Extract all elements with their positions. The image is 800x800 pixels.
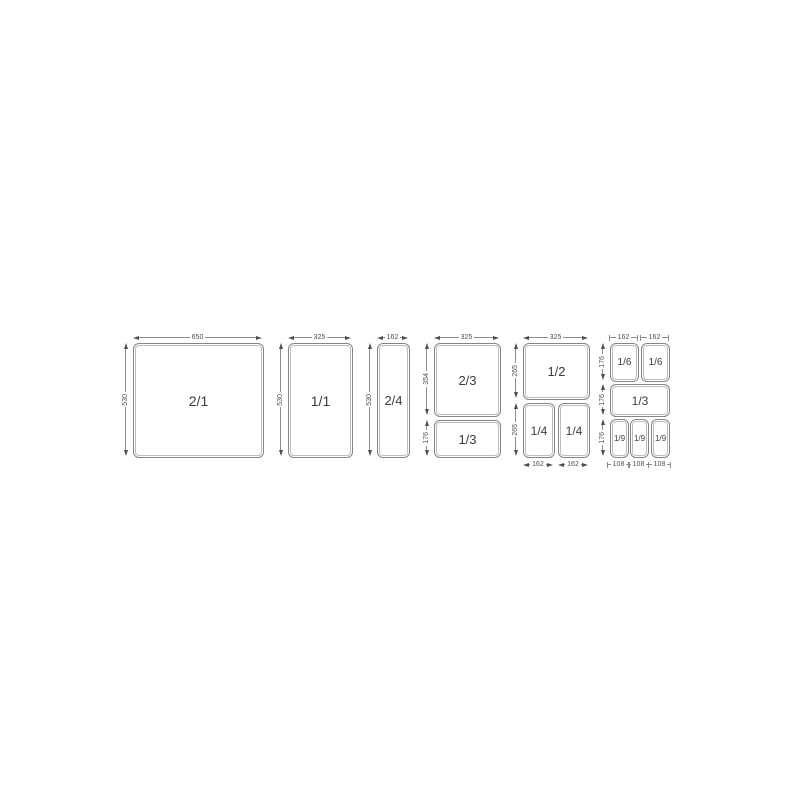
dim-label: 650 [190, 334, 206, 341]
dim-line [280, 349, 281, 392]
arrowhead-down-icon [425, 450, 429, 456]
dim-line [474, 337, 493, 338]
arrowhead-down-icon [601, 450, 605, 456]
dim-label: 108 [611, 461, 627, 468]
dim-arrow-height-1-6: 176 [598, 343, 607, 380]
dim-line [515, 437, 516, 450]
dim-label: 108 [652, 461, 668, 468]
pan-label: 1/9 [614, 435, 625, 443]
dim-arrow-height-1-4: 265 [511, 403, 520, 456]
dim-arrow-width-1-6-left: 162 [609, 333, 638, 342]
pan-1-3-small: 1/3 [610, 384, 670, 417]
dim-tick [668, 335, 669, 341]
pan-1-6-right: 1/6 [641, 343, 670, 382]
dim-label: 325 [312, 334, 328, 341]
dim-label: 162 [385, 334, 401, 341]
arrowhead-right-icon [493, 336, 499, 340]
dim-line [369, 349, 370, 392]
pan-label: 1/1 [311, 394, 330, 408]
dim-line [205, 337, 256, 338]
dim-arrow-height-2-3: 354 [422, 343, 431, 415]
pan-1-2: 1/2 [523, 343, 590, 400]
dim-label: 176 [423, 430, 430, 446]
dim-arrow-width-1-9-c: 108 [648, 460, 671, 469]
arrowhead-down-icon [368, 450, 372, 456]
dim-line [602, 425, 603, 430]
dim-line [125, 349, 126, 392]
dim-label: 108 [631, 461, 647, 468]
dim-label: 325 [459, 334, 475, 341]
dim-line [515, 409, 516, 422]
pan-label: 1/9 [634, 435, 645, 443]
dim-line [515, 349, 516, 363]
dim-line [440, 337, 459, 338]
arrowhead-right-icon [547, 463, 553, 467]
dim-arrow-width-2-3: 325 [434, 333, 499, 342]
arrowhead-down-icon [514, 450, 518, 456]
pan-2-4: 2/4 [377, 343, 410, 458]
pan-label: 2/4 [384, 394, 402, 407]
dim-label: 325 [548, 334, 564, 341]
arrowhead-right-icon [582, 336, 588, 340]
dim-line [280, 407, 281, 450]
dim-arrow-height-2-1: 530 [121, 343, 130, 456]
dim-label: 176 [599, 392, 606, 408]
dim-line [369, 407, 370, 450]
dim-line [563, 337, 582, 338]
dim-arrow-height-2-4: 530 [365, 343, 374, 456]
dim-arrow-width-1-9-b: 108 [628, 460, 649, 469]
pan-2-3: 2/3 [434, 343, 501, 417]
dim-line [426, 387, 427, 409]
dim-arrow-width-1-4-right: 162 [558, 460, 588, 469]
dim-arrow-width-2-1: 650 [133, 333, 262, 342]
arrowhead-right-icon [402, 336, 408, 340]
dim-line [426, 349, 427, 371]
dim-label: 162 [616, 334, 632, 341]
dim-line [515, 378, 516, 392]
pan-label: 2/1 [189, 394, 208, 408]
dim-arrow-height-1-1: 530 [276, 343, 285, 456]
pan-2-1: 2/1 [133, 343, 264, 458]
dim-label: 162 [647, 334, 663, 341]
dim-line [294, 337, 312, 338]
dim-arrow-height-1-2: 265 [511, 343, 520, 398]
dim-arrow-width-1-9-a: 108 [607, 460, 630, 469]
arrowhead-down-icon [514, 392, 518, 398]
pan-1-9-a: 1/9 [610, 419, 629, 458]
pan-label: 1/6 [649, 358, 663, 368]
pan-label: 1/3 [632, 395, 649, 407]
pan-1-9-c: 1/9 [651, 419, 670, 458]
pan-1-4-left: 1/4 [523, 403, 555, 458]
dim-label: 176 [599, 354, 606, 370]
pan-label: 1/6 [618, 358, 632, 368]
arrowhead-right-icon [256, 336, 262, 340]
dim-arrow-width-1-1: 325 [288, 333, 351, 342]
dim-label: 265 [512, 422, 519, 438]
pan-1-3: 1/3 [434, 420, 501, 458]
pan-label: 1/4 [531, 425, 548, 437]
dim-line [327, 337, 345, 338]
pan-label: 1/2 [547, 365, 565, 378]
dim-label: 162 [565, 461, 581, 468]
dim-arrow-height-1-9: 176 [598, 419, 607, 456]
dim-label: 530 [277, 392, 284, 408]
arrowhead-down-icon [601, 374, 605, 380]
pan-label: 1/4 [566, 425, 583, 437]
dim-label: 265 [512, 363, 519, 379]
pan-1-1: 1/1 [288, 343, 353, 458]
pan-label: 1/3 [458, 433, 476, 446]
arrowhead-down-icon [124, 450, 128, 456]
dim-arrow-width-1-4-left: 162 [523, 460, 553, 469]
pan-1-6-left: 1/6 [610, 343, 639, 382]
dim-arrow-width-2-4: 162 [377, 333, 408, 342]
dim-line [602, 349, 603, 354]
dim-tick [670, 462, 671, 468]
dim-label: 162 [530, 461, 546, 468]
dim-label: 176 [599, 430, 606, 446]
dim-label: 530 [366, 392, 373, 408]
dim-arrow-width-1-2: 325 [523, 333, 588, 342]
pan-1-9-b: 1/9 [630, 419, 649, 458]
arrowhead-down-icon [425, 409, 429, 415]
pan-label: 1/9 [655, 435, 666, 443]
dim-line [529, 337, 548, 338]
dim-line [125, 407, 126, 450]
dim-line [139, 337, 190, 338]
dim-arrow-height-1-3: 176 [422, 420, 431, 456]
arrowhead-down-icon [279, 450, 283, 456]
dim-label: 354 [423, 371, 430, 387]
dim-tick [637, 335, 638, 341]
dim-arrow-height-1-3-small: 176 [598, 384, 607, 415]
pan-1-4-right: 1/4 [558, 403, 590, 458]
arrowhead-right-icon [345, 336, 351, 340]
dim-label: 530 [122, 392, 129, 408]
dim-arrow-width-1-6-right: 162 [640, 333, 669, 342]
pan-label: 2/3 [458, 374, 476, 387]
arrowhead-right-icon [582, 463, 588, 467]
arrowhead-down-icon [601, 409, 605, 415]
gastronorm-size-diagram: 650 530 2/1 325 530 1/1 162 530 2/4 325 … [0, 0, 800, 800]
